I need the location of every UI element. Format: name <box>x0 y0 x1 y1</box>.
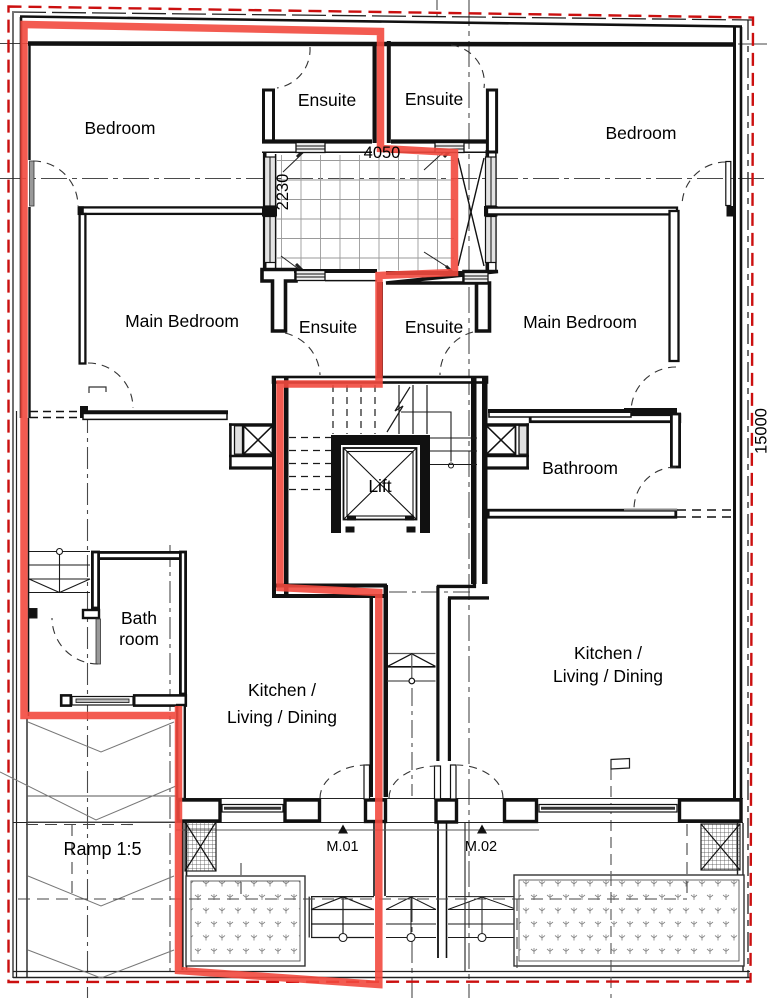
svg-text:Bathroom: Bathroom <box>542 458 618 478</box>
svg-text:Ensuite: Ensuite <box>299 317 357 337</box>
svg-text:Ensuite: Ensuite <box>298 90 356 110</box>
svg-text:Main Bedroom: Main Bedroom <box>523 312 637 332</box>
svg-text:Bath: Bath <box>121 608 157 628</box>
svg-text:Bedroom: Bedroom <box>605 123 676 143</box>
svg-text:Kitchen /: Kitchen / <box>574 643 642 663</box>
svg-text:Lift: Lift <box>368 476 391 496</box>
svg-text:Ramp 1:5: Ramp 1:5 <box>63 839 141 859</box>
svg-text:4050: 4050 <box>364 144 401 162</box>
svg-text:Main Bedroom: Main Bedroom <box>125 311 239 331</box>
svg-text:Kitchen /: Kitchen / <box>248 680 316 700</box>
svg-text:M.01: M.01 <box>326 839 358 855</box>
svg-text:M.02: M.02 <box>465 839 497 855</box>
svg-text:Ensuite: Ensuite <box>405 89 463 109</box>
svg-text:2230: 2230 <box>274 174 292 211</box>
svg-text:Bedroom: Bedroom <box>84 118 155 138</box>
svg-text:Living / Dining: Living / Dining <box>553 666 663 686</box>
svg-text:Living / Dining: Living / Dining <box>227 707 337 727</box>
svg-text:Ensuite: Ensuite <box>405 317 463 337</box>
svg-text:room: room <box>119 629 159 649</box>
svg-text:15000: 15000 <box>753 408 767 454</box>
